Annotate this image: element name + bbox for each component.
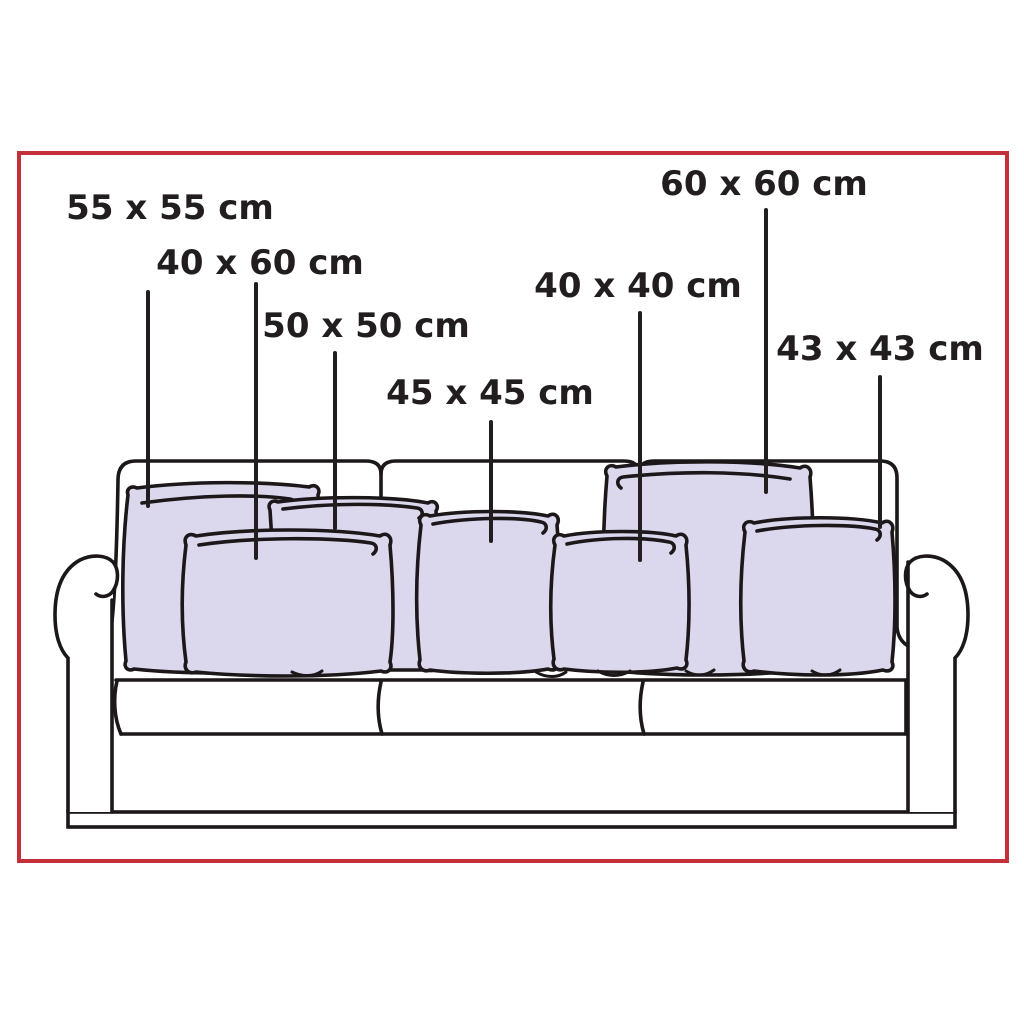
seat-cushion-divider-2 xyxy=(640,682,644,734)
pillow-40x60-body xyxy=(182,530,393,676)
pillow-43x43-body xyxy=(741,518,895,675)
fold-mark xyxy=(536,672,566,677)
pillow-40x60 xyxy=(182,530,393,676)
pillow-size-diagram: 55 x 55 cm 40 x 60 cm 50 x 50 cm 45 x 45… xyxy=(0,0,1024,1024)
label-40x40: 40 x 40 cm xyxy=(534,266,742,306)
size-labels: 55 x 55 cm 40 x 60 cm 50 x 50 cm 45 x 45… xyxy=(66,164,984,413)
label-50x50: 50 x 50 cm xyxy=(262,306,470,346)
sofa-back-middle-section xyxy=(381,461,639,502)
diagram-canvas: 55 x 55 cm 40 x 60 cm 50 x 50 cm 45 x 45… xyxy=(0,0,1024,1024)
label-43x43: 43 x 43 cm xyxy=(776,329,984,369)
seat-cushions xyxy=(115,680,906,734)
sofa-plinth xyxy=(68,812,955,827)
label-55x55: 55 x 55 cm xyxy=(66,188,274,228)
pillow-40x40-body xyxy=(551,532,689,673)
right-arm xyxy=(906,556,969,812)
seat-cushion-divider-1 xyxy=(378,682,382,734)
pillow-45x45-body xyxy=(417,512,560,674)
label-45x45: 45 x 45 cm xyxy=(386,373,594,413)
label-40x60: 40 x 60 cm xyxy=(156,243,364,283)
pillow-40x40 xyxy=(551,532,689,673)
pillow-43x43 xyxy=(741,518,895,675)
left-arm xyxy=(55,556,118,812)
seat-cushion-left-edge xyxy=(115,681,121,734)
label-60x60: 60 x 60 cm xyxy=(660,164,868,204)
pillow-45x45 xyxy=(417,512,560,674)
